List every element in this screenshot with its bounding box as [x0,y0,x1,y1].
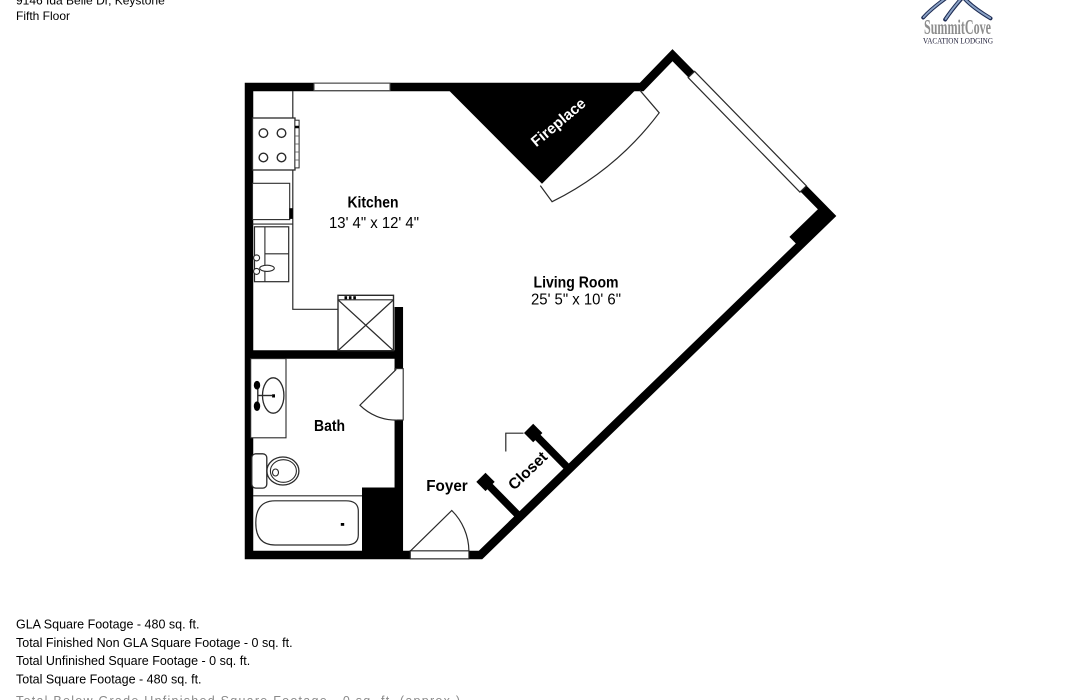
svg-text:Kitchen: Kitchen [348,195,399,212]
svg-text:Living Room: Living Room [534,274,619,291]
svg-text:Total Unfinished Square Footag: Total Unfinished Square Footage - 0 sq. … [16,654,250,668]
svg-text:Total Square Footage - 480 sq.: Total Square Footage - 480 sq. ft. [16,673,202,687]
svg-text:SummitCove: SummitCove [924,15,991,39]
svg-text:13' 4" x 12' 4": 13' 4" x 12' 4" [329,215,419,232]
svg-text:Bath: Bath [314,418,345,435]
svg-text:9146 Ida Belle Dr, Keystone: 9146 Ida Belle Dr, Keystone [16,0,165,8]
svg-text:25' 5" x 10' 6": 25' 5" x 10' 6" [531,291,621,308]
svg-text:VACATION LODGING: VACATION LODGING [923,37,993,46]
svg-text:Total Finished Non GLA Square: Total Finished Non GLA Square Footage - … [16,636,293,650]
svg-text:Foyer: Foyer [426,478,468,495]
svg-text:Fifth Floor: Fifth Floor [16,9,70,23]
svg-text:GLA Square Footage - 480 sq. f: GLA Square Footage - 480 sq. ft. [16,617,199,631]
svg-text:Total Below Grade Unfinished S: Total Below Grade Unfinished Square Foot… [16,694,460,700]
